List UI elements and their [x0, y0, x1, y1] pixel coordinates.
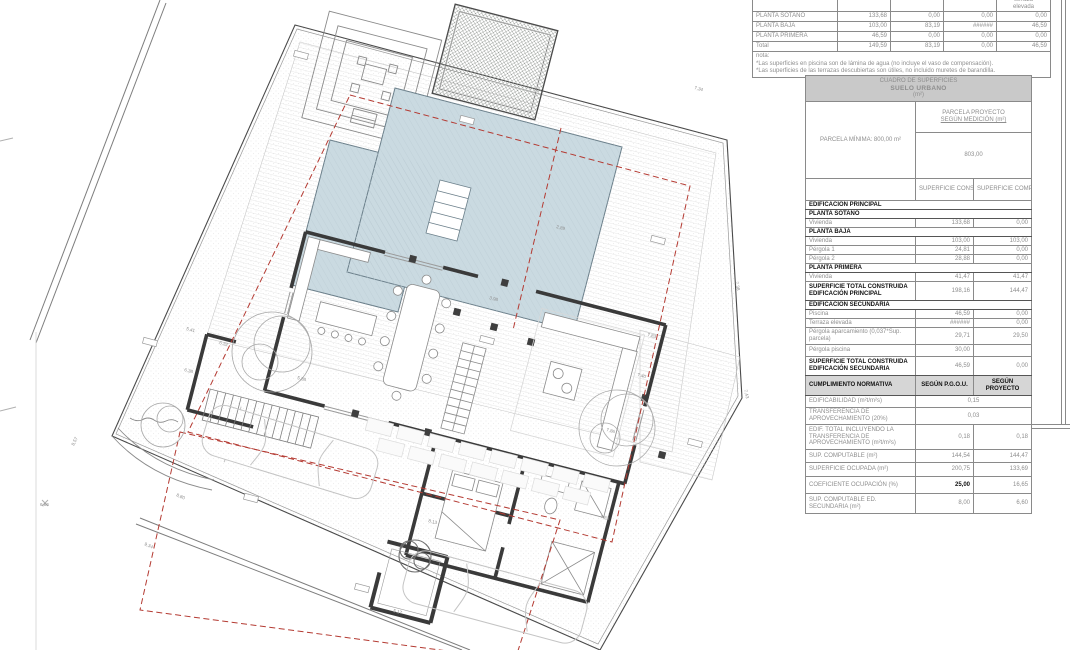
value-cell: 83,19: [891, 42, 944, 52]
table-row: Pérgola 228,880,00: [806, 255, 1032, 264]
row-label: SUPERFICIE OCUPADA (m²): [806, 463, 916, 477]
parcela-proyecto-header: PARCELA PROYECTOSEGÚN MEDICIÓN (m²): [916, 102, 1032, 133]
value-cell: 0,00: [974, 310, 1032, 319]
row-label: TRANSFERENCIA DE APROVECHAMIENTO (20%): [806, 408, 916, 425]
dimension-label: 9,34: [144, 541, 155, 549]
value-cell: 29,71: [916, 328, 974, 345]
parcela-proyecto-value: 803,00: [916, 133, 1032, 179]
row-label: Pérgola 2: [806, 255, 916, 264]
row-label: SUPERFICIE TOTAL CONSTRUIDA EDIFICACIÓN …: [806, 357, 916, 376]
row-label: EDIFICACIÓN SECUNDARIA: [806, 301, 1032, 310]
row-label: Total: [753, 42, 838, 52]
col-header-computable: SUPERFICIE COMPUTABLE: [974, 179, 1032, 201]
row-label: Pérgola piscina: [806, 345, 916, 357]
table-row: PLANTA BAJA: [806, 228, 1032, 237]
table-row: Vivienda103,00103,00: [806, 237, 1032, 246]
notes-text: nota:*Las superficies en piscina son de …: [753, 52, 1051, 78]
column-header: [944, 0, 997, 12]
notes-row: nota:*Las superficies en piscina son de …: [753, 52, 1051, 78]
table-row: SUP. COMPUTABLE ED. SECUNDARIA (m²)8,006…: [806, 494, 1032, 514]
value-cell: 0,00: [891, 12, 944, 22]
value-cell: 30,00: [916, 345, 974, 357]
value-cell: [974, 345, 1032, 357]
value-cell: 0,03: [916, 408, 1032, 425]
row-label: Vivienda: [806, 237, 916, 246]
dimension-label: 6,86: [40, 502, 49, 507]
value-cell: 25,00: [916, 477, 974, 494]
table-row: PLANTA BAJA103,0083,19######46,59: [753, 22, 1051, 32]
table-row: Total149,5983,190,0046,59: [753, 42, 1051, 52]
sheet-border-line: [1061, 0, 1062, 424]
value-cell: 46,59: [997, 42, 1051, 52]
row-label: EDIFICACIÓN PRINCIPAL: [806, 201, 1032, 210]
table-row: SUPERFICIE OCUPADA (m²)200,75133,69: [806, 463, 1032, 477]
table-row: EDIFICACIÓN PRINCIPAL: [806, 201, 1032, 210]
value-cell: 144,47: [974, 450, 1032, 463]
row-label: EDIFICABILIDAD (m²t/m²s): [806, 396, 916, 408]
cuadro-superficies-table: CUADRO DE SUPERFICIESSUELO URBANO(m²) PA…: [805, 75, 1032, 514]
table-row: terraza elevada: [753, 0, 1051, 12]
table-row: Terraza elevada######0,00: [806, 319, 1032, 328]
row-label: EDIF. TOTAL INCLUYENDO LA TRANSFERENCIA …: [806, 425, 916, 450]
table-row: Pérgola piscina30,00: [806, 345, 1032, 357]
row-label: Pérgola aparcamiento (0,037*Sup. parcela…: [806, 328, 916, 345]
row-label: SUP. COMPUTABLE ED. SECUNDARIA (m²): [806, 494, 916, 514]
empty-cell: [806, 179, 916, 201]
column-header: [838, 0, 891, 12]
table-row: PLANTA SÓTANO133,680,000,000,00: [753, 12, 1051, 22]
parcela-minima-cell: PARCELA MÍNIMA: 800,00 m²: [806, 102, 916, 179]
row-label: PLANTA SÓTANO: [806, 210, 1032, 219]
column-header: [753, 0, 838, 12]
dimension-label: 7,43: [743, 389, 750, 399]
value-cell: 103,00: [916, 237, 974, 246]
col-header-construida: SUPERFICIE CONSTRUIDA: [916, 179, 974, 201]
row-label: SUP. COMPUTABLE (m²): [806, 450, 916, 463]
sheet-border-line: [1065, 0, 1066, 424]
value-cell: 16,65: [974, 477, 1032, 494]
row-label: PLANTA PRIMERA: [753, 32, 838, 42]
table-row: SUPERFICIE TOTAL CONSTRUIDA EDIFICACIÓN …: [806, 282, 1032, 301]
value-cell: ######: [944, 22, 997, 32]
value-cell: 200,75: [916, 463, 974, 477]
table-row: COEFICIENTE OCUPACIÓN (%)25,0016,65: [806, 477, 1032, 494]
value-cell: 0,00: [944, 12, 997, 22]
table-row: Pérgola 124,810,00: [806, 246, 1032, 255]
sheet: 7,347,387,432,893,987,837,867,407,835,88…: [0, 0, 1070, 650]
value-cell: 6,60: [974, 494, 1032, 514]
value-cell: 0,00: [974, 319, 1032, 328]
value-cell: 0,00: [891, 32, 944, 42]
table-row: PLANTA SÓTANO: [806, 210, 1032, 219]
value-cell: 103,00: [838, 22, 891, 32]
row-label: Terraza elevada: [806, 319, 916, 328]
value-cell: 83,19: [891, 22, 944, 32]
row-label: Vivienda: [806, 219, 916, 228]
table-row: Piscina46,590,00: [806, 310, 1032, 319]
table-row: Pérgola aparcamiento (0,037*Sup. parcela…: [806, 328, 1032, 345]
value-cell: 41,47: [916, 273, 974, 282]
value-cell: 24,81: [916, 246, 974, 255]
table-row: EDIFICABILIDAD (m²t/m²s)0,15: [806, 396, 1032, 408]
table-row: SUP. COMPUTABLE (m²)144,54144,47: [806, 450, 1032, 463]
table-row: CUMPLIMIENTO NORMATIVASEGÚN P.G.O.U.SEGÚ…: [806, 376, 1032, 396]
value-cell: 41,47: [974, 273, 1032, 282]
sheet-border-line: [1032, 424, 1070, 425]
value-cell: 28,88: [916, 255, 974, 264]
site-plan-drawing: 7,347,387,432,893,987,837,867,407,835,88…: [0, 0, 752, 650]
value-cell: 149,59: [838, 42, 891, 52]
value-cell: SEGÚN PROYECTO: [974, 376, 1032, 396]
row-label: PLANTA SÓTANO: [753, 12, 838, 22]
value-cell: 46,59: [916, 310, 974, 319]
value-cell: 29,50: [974, 328, 1032, 345]
table-row: TRANSFERENCIA DE APROVECHAMIENTO (20%)0,…: [806, 408, 1032, 425]
value-cell: 133,68: [916, 219, 974, 228]
value-cell: 0,15: [916, 396, 1032, 408]
dimension-label: 7,34: [694, 85, 704, 92]
row-label: Vivienda: [806, 273, 916, 282]
value-cell: 0,18: [974, 425, 1032, 450]
value-cell: 0,00: [997, 32, 1051, 42]
table-row: EDIF. TOTAL INCLUYENDO LA TRANSFERENCIA …: [806, 425, 1032, 450]
value-cell: 46,59: [997, 22, 1051, 32]
value-cell: 103,00: [974, 237, 1032, 246]
table-row: Vivienda41,4741,47: [806, 273, 1032, 282]
surface-summary-table: terraza elevadaPLANTA SÓTANO133,680,000,…: [752, 0, 1051, 78]
edge-tick: [0, 138, 48, 506]
value-cell: 8,00: [916, 494, 974, 514]
table-row: EDIFICACIÓN SECUNDARIA: [806, 301, 1032, 310]
value-cell: 46,59: [838, 32, 891, 42]
value-cell: 144,54: [916, 450, 974, 463]
table-row: PLANTA PRIMERA46,590,000,000,00: [753, 32, 1051, 42]
row-label: PLANTA PRIMERA: [806, 264, 1032, 273]
table-title: CUADRO DE SUPERFICIESSUELO URBANO(m²): [806, 76, 1032, 102]
value-cell: 46,59: [916, 357, 974, 376]
value-cell: 0,00: [974, 219, 1032, 228]
row-label: Piscina: [806, 310, 916, 319]
value-cell: 0,00: [974, 357, 1032, 376]
dimension-label: 8,80: [176, 492, 187, 500]
value-cell: 133,69: [974, 463, 1032, 477]
value-cell: 0,00: [997, 12, 1051, 22]
sheet-border-line: [1032, 428, 1070, 429]
row-label: COEFICIENTE OCUPACIÓN (%): [806, 477, 916, 494]
column-header: [891, 0, 944, 12]
value-cell: 0,00: [974, 255, 1032, 264]
value-cell: 0,18: [916, 425, 974, 450]
dimension-label: 8,57: [70, 436, 79, 447]
value-cell: 133,68: [838, 12, 891, 22]
table-row: SUPERFICIE TOTAL CONSTRUIDA EDIFICACIÓN …: [806, 357, 1032, 376]
value-cell: 144,47: [974, 282, 1032, 301]
row-label: PLANTA BAJA: [753, 22, 838, 32]
table-row: PLANTA PRIMERA: [806, 264, 1032, 273]
row-label: CUMPLIMIENTO NORMATIVA: [806, 376, 916, 396]
value-cell: 0,00: [944, 42, 997, 52]
row-label: Pérgola 1: [806, 246, 916, 255]
value-cell: 0,00: [944, 32, 997, 42]
row-label: PLANTA BAJA: [806, 228, 1032, 237]
value-cell: 198,16: [916, 282, 974, 301]
column-header: terraza elevada: [997, 0, 1051, 12]
value-cell: 0,00: [974, 246, 1032, 255]
value-cell: ######: [916, 319, 974, 328]
table-row: Vivienda133,680,00: [806, 219, 1032, 228]
row-label: SUPERFICIE TOTAL CONSTRUIDA EDIFICACIÓN …: [806, 282, 916, 301]
value-cell: SEGÚN P.G.O.U.: [916, 376, 974, 396]
